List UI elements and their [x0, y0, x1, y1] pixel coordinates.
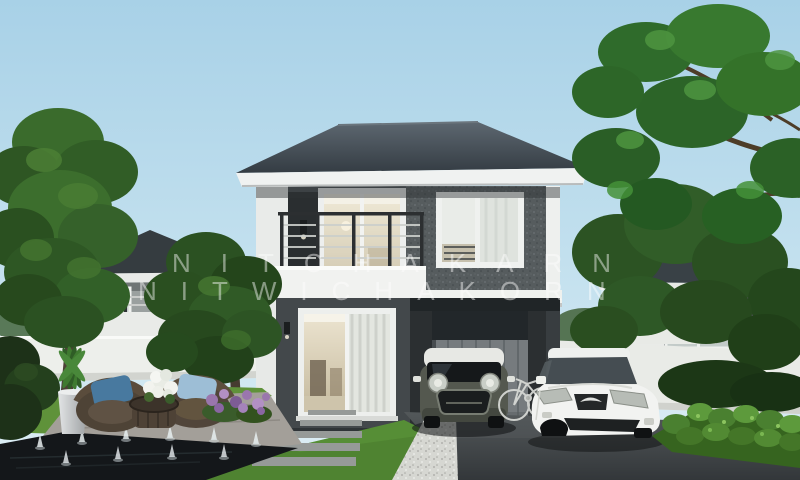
scene: NITCHAKARN NITWICHAKORN [0, 0, 800, 480]
sedan-windshield [545, 357, 637, 384]
watermark-line-2: NITWICHAKORN [138, 276, 630, 306]
balcony-sconce-lamp [300, 220, 307, 234]
watermark: NITCHAKARN NITWICHAKORN [138, 248, 641, 306]
mini-car [412, 348, 516, 437]
watermark-line-1: NITCHAKARN [172, 248, 641, 278]
rendering-canvas: NITCHAKARN NITWICHAKORN [0, 0, 800, 480]
sedan-grille [574, 394, 608, 410]
entry-sconce-lamp [284, 322, 290, 334]
ground-glass-door [296, 308, 398, 421]
